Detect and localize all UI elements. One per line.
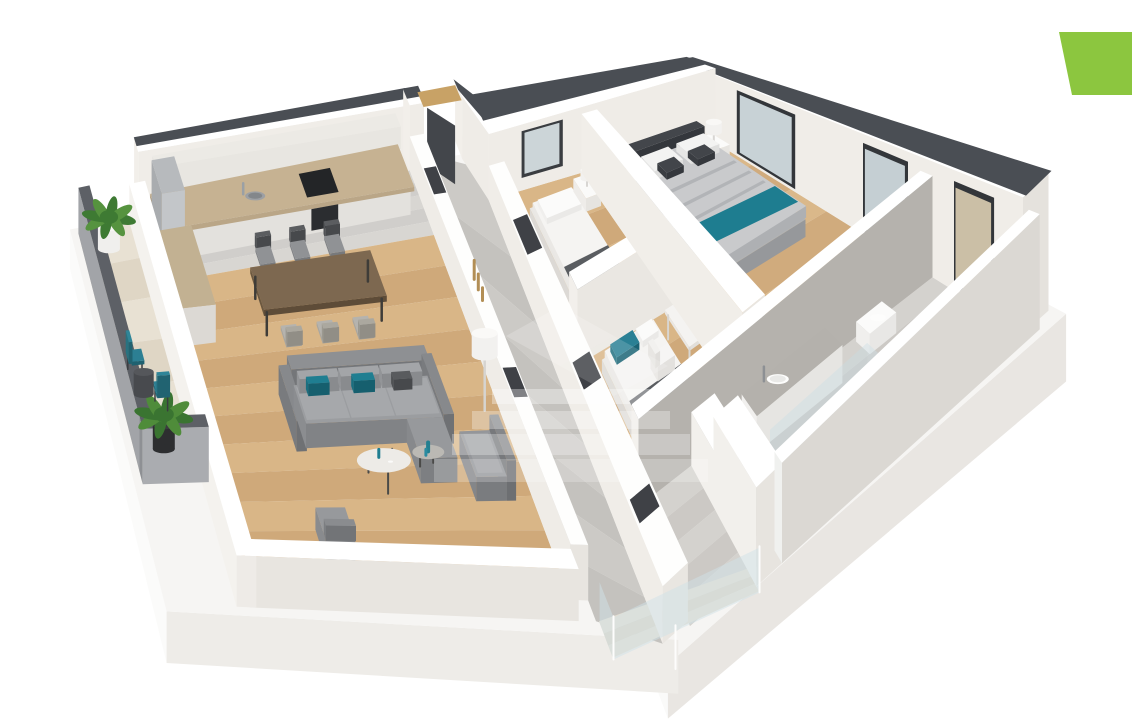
floor-plan-page — [0, 0, 1132, 728]
balcony-table — [134, 368, 154, 398]
coffee-table-cup — [388, 461, 393, 463]
floor-lamp-shade — [472, 328, 498, 360]
coffee-table-top — [357, 448, 411, 472]
dining-chair-s1-back — [286, 326, 303, 347]
dining-chair-s2-back — [322, 322, 339, 343]
sofa-teal-pillow-2 — [351, 372, 375, 393]
dining-chair-s3-back — [358, 318, 375, 339]
kitchen-sink-basin — [248, 193, 262, 199]
living-front-wall — [245, 539, 579, 621]
watermark-bar-1 — [492, 389, 650, 404]
lounge-chair-back — [324, 519, 356, 541]
bath-sink-basin — [770, 375, 786, 382]
balcony-chair2-back — [156, 371, 170, 398]
toilet-seat — [870, 314, 886, 321]
watermark-bar-4 — [434, 459, 708, 482]
sofa-teal-pillow-1 — [306, 375, 330, 396]
watermark-bar-2 — [472, 411, 670, 429]
floor-plan-3d-render — [0, 0, 1132, 728]
sofa-dark-pillow — [391, 371, 412, 391]
master-lamp-right-shade — [706, 119, 722, 136]
watermark-bar-3 — [452, 434, 690, 455]
